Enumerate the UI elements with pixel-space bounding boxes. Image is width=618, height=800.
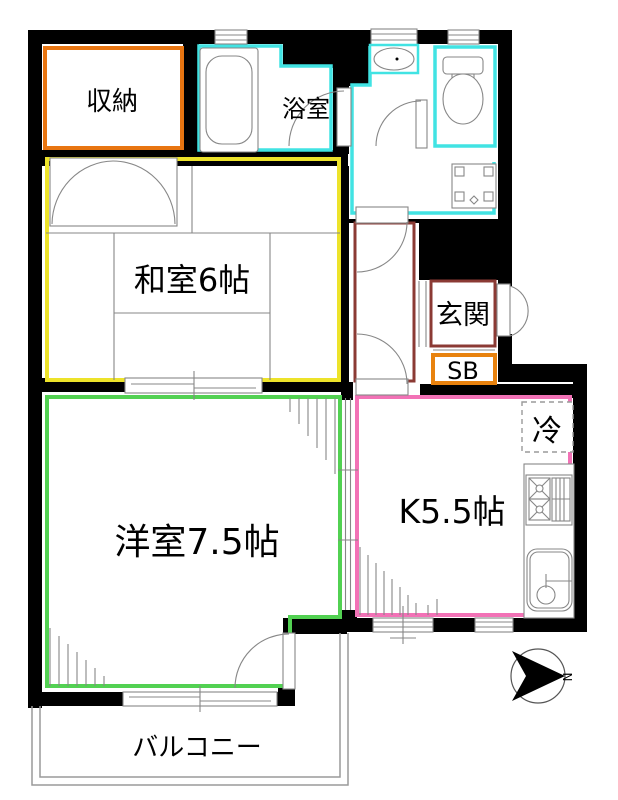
window-top-washroom	[371, 29, 417, 45]
balcony-door	[235, 633, 295, 689]
hatch-kitchen-bottom-left	[360, 547, 437, 615]
corridor-border	[355, 223, 414, 381]
stove	[526, 475, 572, 525]
room-label-entrance: 玄関	[436, 300, 490, 331]
kitchen-counter	[524, 464, 574, 618]
washing-machine-pan	[452, 164, 496, 208]
compass: N	[511, 649, 574, 703]
compass-north-label: N	[560, 673, 574, 682]
closet-doors	[50, 158, 177, 226]
entrance-door	[497, 284, 528, 336]
room-label-storage: 収納	[86, 87, 138, 117]
corridor-bottom-door	[356, 334, 408, 395]
hatch-western-bottom-left	[50, 628, 104, 686]
room-label-kitchen: K5.5帖	[398, 492, 505, 531]
room-label-bathroom: 浴室	[282, 95, 330, 123]
kitchen-sink	[527, 549, 572, 611]
window-top-bath	[215, 30, 247, 44]
room-label-western-room: 洋室7.5帖	[114, 522, 279, 563]
floor-plan: N 収納 浴室 和室6帖 玄関 SB 冷 K5.5帖 洋室7.5帖 バルコニー	[0, 0, 618, 800]
toilet	[443, 57, 483, 124]
floor-plan-page: N 収納 浴室 和室6帖 玄関 SB 冷 K5.5帖 洋室7.5帖 バルコニー	[0, 0, 618, 800]
room-label-refrigerator: 冷	[532, 414, 562, 449]
room-label-japanese-room: 和室6帖	[134, 261, 250, 299]
wash-basin	[370, 45, 418, 73]
compass-north-arrow	[512, 651, 565, 701]
window-top-toilet	[448, 30, 479, 44]
corridor-top-door	[356, 207, 408, 272]
washroom-corner-block	[347, 44, 371, 86]
room-label-balcony: バルコニー	[132, 733, 261, 763]
room-label-shoe-box: SB	[447, 357, 479, 385]
hatch-western-top-right	[290, 398, 335, 474]
bathtub	[200, 48, 258, 152]
western-room-window	[123, 686, 277, 712]
